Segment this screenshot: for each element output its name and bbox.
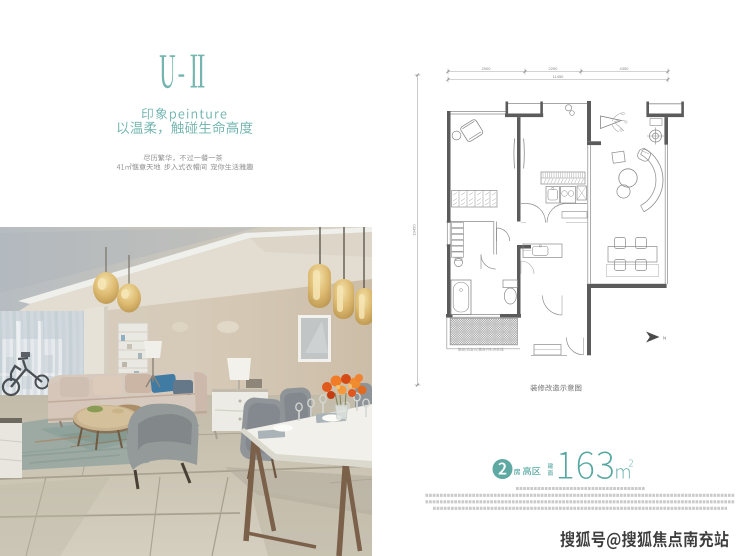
- svg-text:N: N: [663, 336, 666, 341]
- svg-text:4350: 4350: [620, 66, 630, 71]
- svg-text:2900: 2900: [482, 66, 492, 71]
- svg-text:10450: 10450: [412, 224, 417, 236]
- svg-text:11450: 11450: [553, 74, 565, 79]
- svg-text:2250: 2250: [549, 66, 559, 71]
